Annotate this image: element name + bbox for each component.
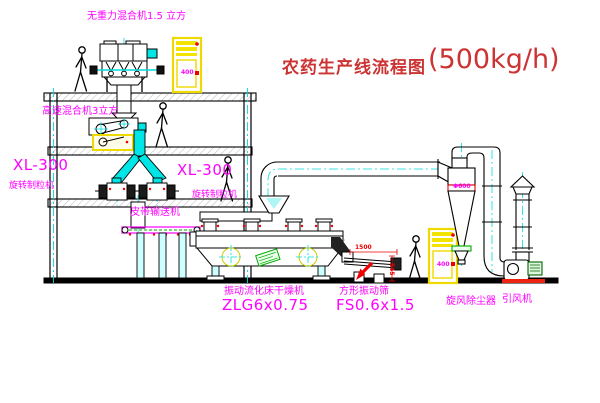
title-capacity: (500kg/h) bbox=[428, 44, 560, 75]
label-dryer-model: ZLG6x0.75 bbox=[222, 298, 309, 313]
cabinet-top-mark: 400 bbox=[181, 70, 194, 76]
label-granulator-left-model: XL-300 bbox=[13, 158, 68, 173]
label-fan: 引风机 bbox=[502, 295, 532, 305]
exhaust-duct bbox=[259, 159, 452, 213]
person-icon bbox=[409, 236, 421, 280]
label-high-speed-mixer: 高速混合机3立方 bbox=[42, 107, 118, 117]
induced-draft-fan-machine bbox=[502, 260, 545, 283]
drawing-title: 农药生产线流程图 (500kg/h) bbox=[282, 44, 560, 78]
control-cabinet-bottom bbox=[429, 229, 457, 283]
flow-diagram-canvas: 农药生产线流程图 (500kg/h) 无重力混合机1.5 立方 高速混合机3立方… bbox=[0, 0, 600, 403]
fan-suction-pipe bbox=[482, 170, 505, 276]
label-granulator-left-name: 旋转制粒机 bbox=[9, 182, 54, 191]
label-screen-model: FS0.6x1.5 bbox=[336, 298, 415, 313]
label-granulator-right-name: 旋转制粒机 bbox=[192, 191, 237, 200]
title-text: 农药生产线流程图 bbox=[282, 44, 426, 78]
granulator-right bbox=[135, 183, 179, 200]
dim-screen-length: 1500 bbox=[355, 245, 372, 251]
label-granulator-right-model: XL-300 bbox=[177, 163, 232, 178]
granulator-left bbox=[95, 183, 139, 200]
dim-screen-height: 545 bbox=[388, 263, 394, 276]
label-belt-conveyor: 皮带输送机 bbox=[130, 208, 180, 218]
cabinet-bottom-mark: 400 bbox=[437, 262, 450, 268]
fluid-bed-dryer-machine bbox=[190, 212, 343, 280]
control-cabinet-top bbox=[173, 38, 201, 92]
label-gravity-mixer: 无重力混合机1.5 立方 bbox=[87, 12, 186, 22]
person-icon bbox=[75, 47, 87, 91]
label-cyclone: 旋风除尘器 bbox=[446, 297, 496, 307]
dim-cyclone-diameter: Φ600 bbox=[453, 184, 471, 190]
person-icon bbox=[156, 103, 168, 147]
